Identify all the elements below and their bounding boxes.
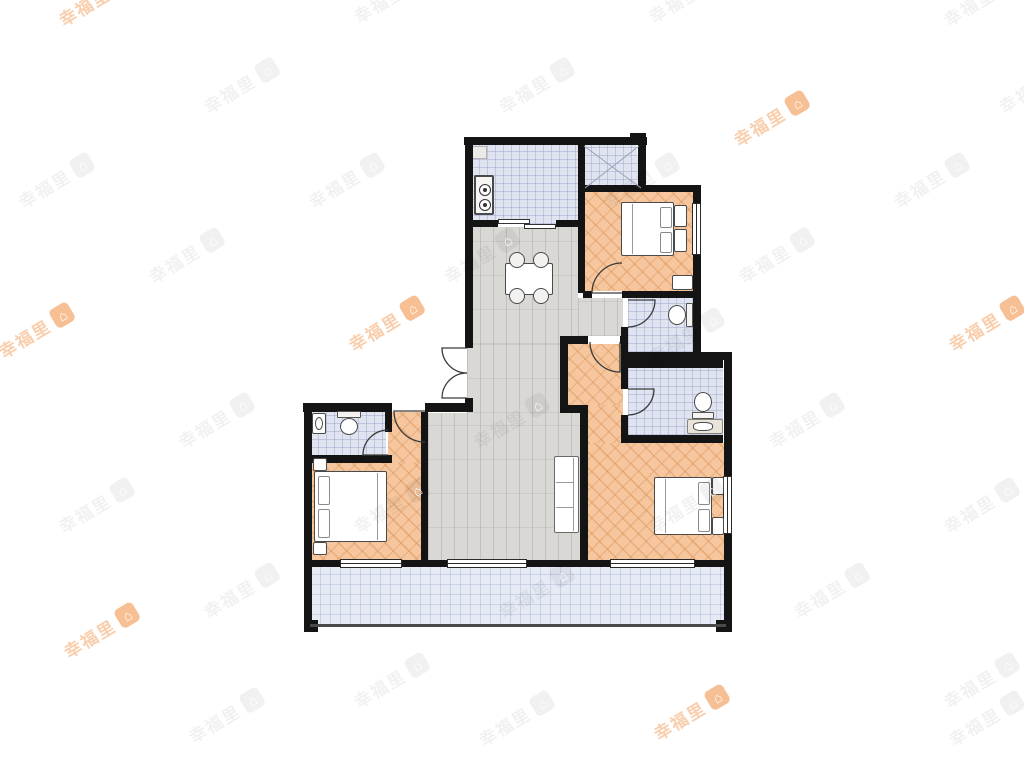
nightstand <box>313 458 327 471</box>
stove-burner <box>479 199 491 211</box>
bathroom-master-door <box>628 389 654 415</box>
toilet-master <box>692 392 714 419</box>
sofa-back-line <box>573 458 574 531</box>
cabinet <box>672 275 693 290</box>
toilet-bowl <box>340 418 358 435</box>
kitchen-stove <box>474 175 494 215</box>
master-bedroom-door <box>590 342 620 372</box>
bed-north <box>621 202 674 256</box>
sink-bowl <box>693 422 713 431</box>
toilet-bowl <box>694 392 712 412</box>
basin-bowl <box>315 417 323 430</box>
toilet-north <box>668 303 693 327</box>
toilet-west <box>337 411 361 435</box>
bed-blanket-line <box>632 204 633 254</box>
dining-chair <box>533 288 549 304</box>
dining-chair <box>509 288 525 304</box>
nightstand <box>674 205 687 227</box>
bathroom-north-door <box>628 300 655 327</box>
washbasin-west <box>312 413 326 434</box>
sofa-cushion-divider <box>556 507 573 508</box>
toilet-tank <box>337 411 361 418</box>
toilet-bowl <box>668 305 686 325</box>
bed-pillow <box>698 509 710 532</box>
nightstand <box>313 542 327 555</box>
nightstand <box>674 229 687 252</box>
dining-chair <box>533 252 549 268</box>
entry-door-leaf-upper <box>442 348 467 373</box>
living-sofa <box>554 456 579 533</box>
sofa-cushion-divider <box>556 482 573 483</box>
bedroom-west-door <box>394 411 425 442</box>
toilet-tank <box>692 412 714 419</box>
bathroom-west-door <box>363 430 388 455</box>
bed-pillow <box>318 476 330 505</box>
toilet-tank <box>686 303 693 327</box>
bedroom-north-door <box>592 263 622 293</box>
door-swings-layer <box>0 0 1024 768</box>
bed-blanket-line <box>377 473 378 540</box>
entry-door-leaf-lower <box>442 373 467 398</box>
floorplan-image: 幸福里⌂幸福里⌂幸福里⌂幸福里⌂幸福里⌂幸福里⌂幸福里⌂幸福里⌂幸福里⌂幸福里⌂… <box>0 0 1024 768</box>
bed-pillow <box>660 207 672 228</box>
bed-pillow <box>318 509 330 538</box>
nightstand <box>712 517 724 535</box>
bed-pillow <box>698 482 710 505</box>
nightstand <box>712 477 724 495</box>
bed-pillow <box>660 232 672 253</box>
shaft-cross-lines <box>584 146 641 188</box>
bed-blanket-line <box>665 479 666 533</box>
vanity-counter <box>687 419 723 434</box>
bed-master <box>654 477 712 535</box>
bed-west <box>314 471 387 542</box>
stove-burner <box>479 184 491 196</box>
dining-chair <box>509 252 525 268</box>
